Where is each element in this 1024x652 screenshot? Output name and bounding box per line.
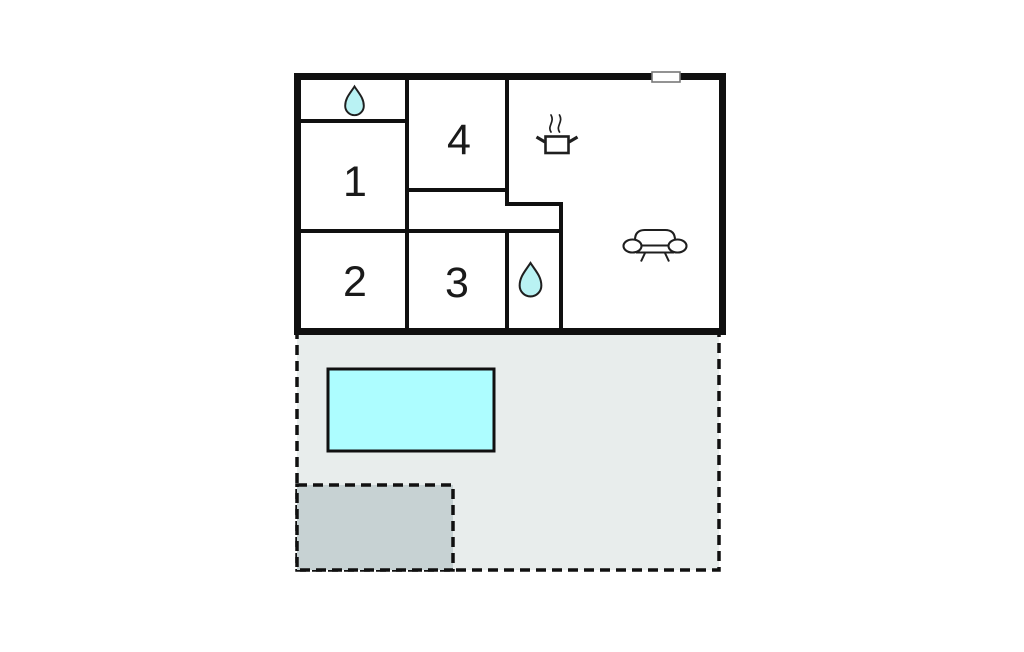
floor-plan: 1 2 3 4 bbox=[0, 0, 1024, 652]
wall-segment bbox=[301, 229, 563, 233]
wall-segment bbox=[301, 119, 405, 123]
swimming-pool bbox=[328, 369, 494, 451]
floor-plan-page: 1 2 3 4 bbox=[0, 0, 1024, 652]
wall-segment bbox=[505, 229, 509, 328]
room-3-label: 3 bbox=[445, 259, 469, 307]
window-icon bbox=[652, 72, 680, 82]
wall-segment bbox=[505, 80, 509, 206]
patio-area bbox=[297, 485, 453, 570]
wall-segment bbox=[405, 188, 509, 192]
wall-segment bbox=[505, 202, 563, 206]
room-4-label: 4 bbox=[447, 116, 471, 164]
pot-body bbox=[546, 137, 569, 154]
sofa-armrest bbox=[624, 240, 642, 253]
wall-segment bbox=[405, 80, 409, 328]
room-1-label: 1 bbox=[343, 158, 367, 206]
terrace-area bbox=[297, 333, 719, 570]
room-2-label: 2 bbox=[343, 258, 367, 306]
sofa-armrest bbox=[669, 240, 687, 253]
wall-segment bbox=[559, 202, 563, 328]
house: 1 2 3 4 bbox=[294, 72, 726, 335]
